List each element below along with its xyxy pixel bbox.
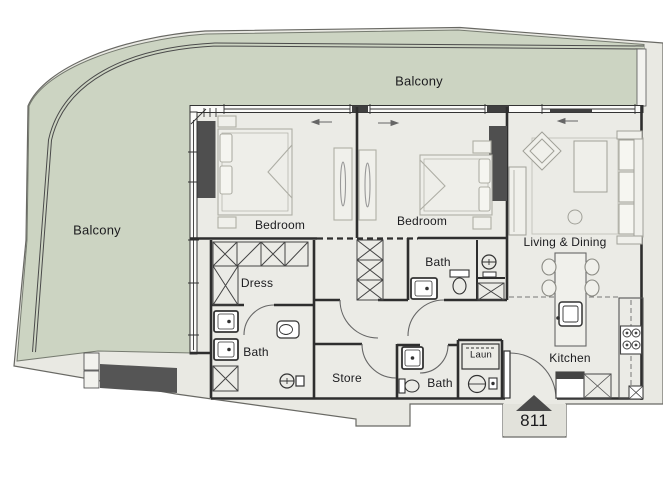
pillow-icon — [220, 134, 232, 162]
room-label-balcony-top: Balcony — [395, 74, 443, 89]
room-label-bedroom-1: Bedroom — [255, 218, 305, 232]
room-label-kitchen: Kitchen — [549, 351, 590, 365]
room-label-store: Store — [332, 371, 362, 385]
sofa-arm — [617, 131, 642, 139]
room-label-balcony-left: Balcony — [73, 223, 121, 238]
sofa-cushion — [619, 172, 634, 202]
pillow-icon — [220, 166, 232, 194]
nightstand-icon — [218, 217, 236, 228]
chair-icon — [585, 280, 599, 296]
room-label-living-dining: Living & Dining — [523, 235, 606, 249]
dining-island-icon — [555, 253, 586, 346]
sofa-cushion — [619, 140, 634, 170]
wardrobe-icon — [359, 150, 376, 220]
toilet-icon — [277, 321, 299, 338]
balcony-planter-block — [100, 364, 177, 393]
toilet-icon — [399, 379, 405, 393]
floor-plan: Balcony Balcony Bedroom Bedroom Living &… — [0, 0, 663, 481]
room-label-dress: Dress — [241, 276, 273, 290]
nightstand-icon — [218, 116, 236, 127]
room-label-bath-guest: Bath — [427, 376, 453, 390]
sofa-arm — [617, 236, 642, 244]
balcony-end-wall — [637, 49, 646, 106]
room-label-laundry: Laun — [470, 350, 492, 361]
nightstand-icon — [473, 141, 491, 153]
chair-icon — [542, 280, 556, 296]
chair-icon — [542, 259, 556, 275]
chair-icon — [585, 259, 599, 275]
wardrobe-icon — [334, 148, 352, 220]
pillow-icon — [479, 159, 490, 183]
pillow-icon — [479, 187, 490, 211]
nightstand-icon — [473, 217, 491, 229]
sofa-back — [634, 138, 643, 237]
toilet-icon — [450, 270, 469, 277]
room-label-bath-master: Bath — [243, 345, 269, 359]
room-label-bath-ensuite: Bath — [425, 255, 451, 269]
tv-unit-icon — [509, 167, 526, 235]
column-bedroom-1 — [198, 121, 216, 198]
sofa-cushion — [619, 204, 634, 234]
unit-number-label: 811 — [520, 411, 548, 431]
room-label-bedroom-2: Bedroom — [397, 214, 447, 228]
coffee-table-icon — [574, 141, 607, 192]
entrance-door-leaf — [504, 351, 510, 398]
